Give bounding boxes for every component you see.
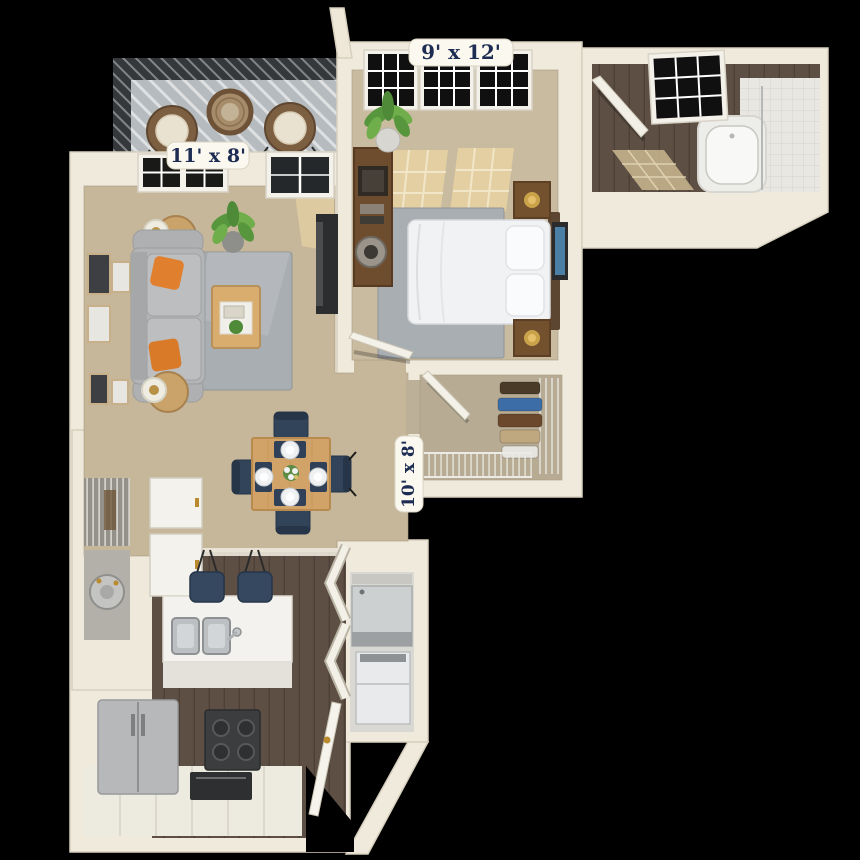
washer (356, 652, 410, 724)
centerpiece (283, 465, 299, 481)
dining-dimension-label: 10' x 8' (395, 436, 423, 512)
tv-screen (316, 222, 323, 306)
dryer (352, 586, 412, 646)
patio-table (209, 91, 251, 133)
pillow (506, 274, 544, 316)
cabinet-knob (195, 498, 199, 507)
drain (730, 134, 735, 139)
water-heater-closet (84, 550, 130, 640)
kitchen-island (163, 596, 292, 688)
wire-shelf (424, 452, 532, 478)
bedroom-dimension-text: 9' x 12' (421, 40, 501, 64)
dresser (354, 148, 392, 286)
throw-pillow (149, 255, 185, 291)
pantry-items (104, 490, 116, 530)
pantry-closet (84, 478, 130, 546)
balcony-dimension-text: 11' x 8' (170, 145, 246, 167)
hanging-clothes (498, 382, 542, 458)
books (360, 204, 384, 214)
balcony-dimension-label: 11' x 8' (167, 142, 249, 169)
refrigerator (98, 700, 178, 794)
bathroom-window (648, 50, 728, 124)
laundry-shelf (352, 574, 412, 584)
floor-plan-render: 9' x 12' 11' x 8' 10' x 8' (0, 0, 860, 860)
nightstand (514, 320, 550, 356)
pillow (506, 226, 544, 270)
nightstand (514, 182, 550, 218)
floor-plan-page: 9' x 12' 11' x 8' 10' x 8' (0, 0, 860, 860)
coffee-table (212, 286, 260, 348)
dining-table (252, 438, 330, 510)
throw-pillow (148, 338, 182, 372)
bedroom-wall-art (552, 222, 568, 280)
door-knob (324, 737, 331, 744)
oven-door (190, 772, 252, 800)
bedroom-dimension-label: 9' x 12' (409, 39, 513, 66)
dining-dimension-text: 10' x 8' (399, 440, 419, 508)
balcony-glass-door (266, 152, 334, 198)
tv-stand (316, 214, 338, 314)
dining-chair (274, 412, 308, 440)
bed (408, 212, 560, 330)
